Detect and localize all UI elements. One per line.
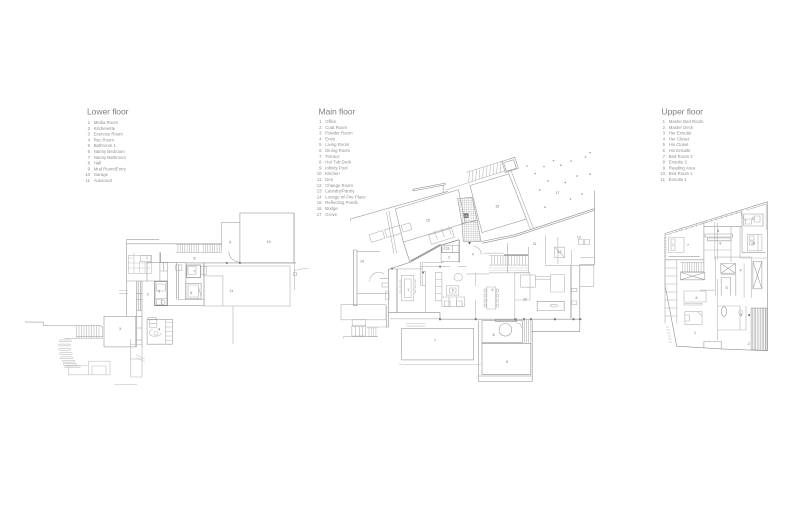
svg-text:Grove: Grove	[325, 212, 337, 217]
svg-text:Den: Den	[325, 177, 333, 182]
svg-text:13: 13	[577, 235, 581, 239]
svg-text:2: 2	[319, 125, 322, 130]
svg-text:5: 5	[88, 143, 91, 148]
svg-text:7: 7	[319, 154, 322, 159]
svg-text:6: 6	[696, 296, 698, 300]
svg-text:10: 10	[751, 241, 755, 245]
svg-text:Garage: Garage	[94, 172, 109, 177]
svg-text:8: 8	[319, 160, 322, 165]
svg-text:Ensuite 2: Ensuite 2	[669, 160, 688, 165]
svg-text:Nanny Bedroom: Nanny Bedroom	[94, 149, 125, 154]
svg-text:Entry: Entry	[325, 136, 336, 141]
svg-text:Hot Tub Deck: Hot Tub Deck	[325, 160, 352, 165]
svg-text:8: 8	[663, 160, 666, 165]
svg-text:3: 3	[448, 247, 450, 251]
svg-text:3: 3	[319, 131, 322, 136]
svg-text:2: 2	[147, 293, 149, 297]
svg-text:7: 7	[663, 154, 666, 159]
svg-text:11: 11	[661, 177, 666, 182]
svg-text:2: 2	[448, 256, 450, 260]
svg-text:6: 6	[190, 291, 192, 295]
svg-text:9: 9	[663, 165, 666, 170]
svg-text:6: 6	[492, 288, 494, 292]
svg-text:Bridge: Bridge	[325, 206, 338, 211]
svg-text:Change Room: Change Room	[325, 183, 353, 188]
svg-text:10: 10	[523, 298, 527, 302]
svg-text:2: 2	[748, 342, 750, 346]
svg-text:Infinity Pool: Infinity Pool	[325, 165, 347, 170]
svg-text:His Ensuite: His Ensuite	[669, 148, 691, 153]
svg-text:Kitchenette: Kitchenette	[94, 126, 116, 131]
svg-text:Dining Room: Dining Room	[325, 148, 350, 153]
svg-text:5: 5	[452, 289, 454, 293]
svg-text:16: 16	[317, 206, 322, 211]
svg-text:8: 8	[493, 333, 495, 337]
svg-text:14: 14	[317, 194, 322, 199]
svg-text:Lounge w/ Fire Place: Lounge w/ Fire Place	[325, 194, 366, 199]
svg-text:5: 5	[726, 286, 728, 290]
svg-text:11: 11	[751, 217, 755, 221]
svg-text:12: 12	[558, 250, 562, 254]
svg-text:Rec Room: Rec Room	[94, 137, 115, 142]
svg-text:8: 8	[88, 161, 91, 166]
svg-text:Powder Room: Powder Room	[325, 131, 353, 136]
svg-text:Bed Room 1: Bed Room 1	[669, 171, 693, 176]
svg-text:17: 17	[317, 212, 322, 217]
svg-text:Autocourt: Autocourt	[94, 178, 113, 183]
svg-text:9: 9	[719, 242, 721, 246]
svg-text:6: 6	[319, 148, 322, 153]
svg-text:3: 3	[740, 313, 742, 317]
svg-text:1: 1	[694, 331, 696, 335]
svg-text:Master Deck: Master Deck	[669, 125, 694, 130]
svg-text:10: 10	[660, 171, 665, 176]
svg-text:3: 3	[88, 132, 91, 137]
svg-text:7: 7	[434, 339, 436, 343]
svg-text:16: 16	[464, 214, 468, 218]
svg-text:4: 4	[158, 328, 160, 332]
svg-text:15: 15	[317, 200, 322, 205]
svg-text:Kitchen: Kitchen	[325, 171, 340, 176]
svg-text:Bathroom 1: Bathroom 1	[94, 143, 117, 148]
svg-text:1: 1	[88, 120, 91, 125]
svg-text:1: 1	[407, 288, 409, 292]
svg-text:4: 4	[88, 137, 91, 142]
svg-text:4: 4	[472, 253, 474, 257]
svg-text:8: 8	[717, 229, 719, 233]
svg-text:3: 3	[119, 327, 121, 331]
svg-text:5: 5	[663, 142, 666, 147]
svg-text:1: 1	[663, 119, 666, 124]
svg-text:12: 12	[317, 183, 322, 188]
svg-text:9: 9	[88, 166, 91, 171]
svg-text:Ensuite 1: Ensuite 1	[669, 177, 688, 182]
svg-text:11: 11	[533, 242, 537, 246]
svg-text:Upper floor: Upper floor	[662, 107, 704, 117]
svg-text:15: 15	[495, 205, 499, 209]
svg-text:Terrace: Terrace	[325, 154, 340, 159]
svg-text:Her Closet: Her Closet	[669, 136, 690, 141]
svg-text:11: 11	[230, 289, 234, 293]
svg-text:Media Room: Media Room	[94, 120, 119, 125]
svg-text:10: 10	[317, 171, 322, 176]
svg-text:8: 8	[194, 257, 196, 261]
svg-text:6: 6	[663, 148, 666, 153]
svg-text:4: 4	[740, 269, 742, 273]
svg-text:9: 9	[229, 241, 231, 245]
svg-text:Reading Area: Reading Area	[669, 165, 696, 170]
svg-text:4: 4	[319, 136, 322, 141]
svg-text:Master Bed Room: Master Bed Room	[669, 119, 704, 124]
svg-text:17: 17	[555, 191, 559, 195]
svg-text:Mud Room/Entry: Mud Room/Entry	[94, 166, 127, 171]
svg-text:10: 10	[267, 240, 271, 244]
svg-text:5: 5	[158, 290, 160, 294]
svg-text:Lower floor: Lower floor	[87, 107, 129, 117]
svg-text:Laundry/Pantry: Laundry/Pantry	[325, 189, 355, 194]
svg-text:Coat Room: Coat Room	[325, 125, 347, 130]
svg-text:14: 14	[360, 259, 364, 263]
svg-text:10: 10	[85, 172, 90, 177]
svg-text:2: 2	[663, 125, 666, 130]
svg-text:Reflecting Ponds: Reflecting Ponds	[325, 200, 358, 205]
svg-text:13: 13	[317, 189, 322, 194]
svg-text:4: 4	[663, 136, 666, 141]
svg-text:3: 3	[663, 131, 666, 136]
svg-text:Living Room: Living Room	[325, 142, 349, 147]
svg-text:Nanny Bathroom: Nanny Bathroom	[94, 155, 127, 160]
svg-text:2: 2	[88, 126, 91, 131]
svg-text:1: 1	[319, 119, 322, 124]
svg-text:15: 15	[426, 219, 430, 223]
svg-text:11: 11	[86, 178, 91, 183]
svg-text:Main floor: Main floor	[319, 107, 356, 117]
svg-text:6: 6	[88, 149, 91, 154]
svg-text:Her Ensuite: Her Ensuite	[669, 131, 692, 136]
svg-text:11: 11	[317, 177, 322, 182]
svg-text:Hall: Hall	[94, 161, 101, 166]
svg-text:9: 9	[506, 360, 508, 364]
svg-text:1: 1	[146, 256, 148, 260]
svg-text:5: 5	[319, 142, 322, 147]
svg-text:7: 7	[194, 270, 196, 274]
svg-text:Bed Room 2: Bed Room 2	[669, 154, 693, 159]
svg-text:7: 7	[687, 243, 689, 247]
svg-text:Exercise Room: Exercise Room	[94, 132, 124, 137]
svg-text:7: 7	[88, 155, 91, 160]
svg-text:9: 9	[319, 165, 322, 170]
svg-text:His Closet: His Closet	[669, 142, 689, 147]
svg-text:Office: Office	[325, 119, 337, 124]
